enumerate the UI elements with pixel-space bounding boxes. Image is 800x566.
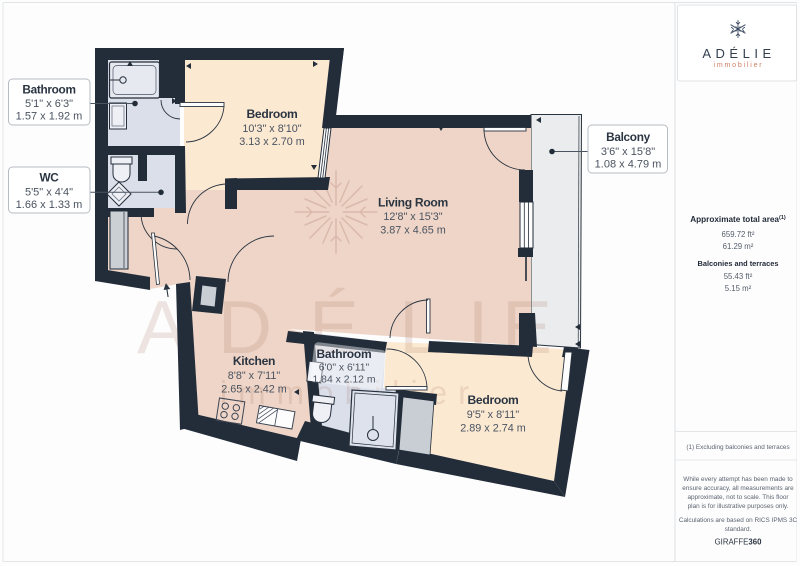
svg-text:Bathroom: Bathroom — [22, 83, 75, 97]
svg-text:GIRAFFE360: GIRAFFE360 — [715, 538, 762, 547]
svg-text:Approximate total area(1): Approximate total area(1) — [690, 215, 786, 224]
svg-text:I: I — [468, 285, 489, 369]
svg-text:5.15 m²: 5.15 m² — [725, 284, 752, 293]
svg-text:6'0" x 6'11": 6'0" x 6'11" — [319, 363, 370, 374]
svg-text:approximate, not to scale. Thi: approximate, not to scale. This floor — [687, 494, 789, 501]
svg-text:Balconies and terraces: Balconies and terraces — [698, 259, 779, 268]
svg-text:While every attempt has been m: While every attempt has been made to — [683, 476, 793, 483]
svg-text:3'6" x 15'8": 3'6" x 15'8" — [601, 146, 655, 158]
svg-text:Bathroom: Bathroom — [316, 347, 371, 361]
svg-text:Bedroom: Bedroom — [247, 107, 298, 121]
svg-text:Kitchen: Kitchen — [233, 354, 275, 368]
svg-text:Calculations are based on RICS: Calculations are based on RICS IPMS 3C — [679, 517, 798, 524]
svg-text:1.57 x 1.92 m: 1.57 x 1.92 m — [16, 111, 83, 123]
svg-text:5'5" x 4'4": 5'5" x 4'4" — [25, 187, 73, 199]
svg-text:1.84 x 2.12 m: 1.84 x 2.12 m — [313, 375, 376, 386]
svg-text:2.89 x 2.74 m: 2.89 x 2.74 m — [460, 423, 525, 435]
svg-text:ADÉLIE: ADÉLIE — [702, 46, 775, 61]
svg-text:3.13 x 2.70 m: 3.13 x 2.70 m — [239, 136, 304, 148]
svg-text:55.43 ft²: 55.43 ft² — [724, 272, 753, 281]
svg-text:3.87 x 4.65 m: 3.87 x 4.65 m — [380, 225, 445, 237]
svg-text:Bedroom: Bedroom — [468, 393, 519, 407]
svg-text:immobilier: immobilier — [714, 62, 764, 69]
svg-text:5'1" x 6'3": 5'1" x 6'3" — [25, 98, 73, 110]
svg-text:9'5" x 8'11": 9'5" x 8'11" — [467, 409, 520, 421]
svg-text:61.29 m²: 61.29 m² — [723, 242, 754, 251]
svg-text:659.72 ft²: 659.72 ft² — [722, 230, 755, 239]
svg-text:ensure accuracy, all measureme: ensure accuracy, all measurements are — [682, 485, 794, 492]
svg-text:8'8" x 7'11": 8'8" x 7'11" — [228, 370, 281, 382]
svg-text:1.08 x 4.79 m: 1.08 x 4.79 m — [595, 159, 662, 171]
svg-text:Balcony: Balcony — [606, 130, 651, 144]
svg-text:WC: WC — [39, 171, 59, 185]
svg-text:1.66 x 1.33 m: 1.66 x 1.33 m — [16, 199, 83, 211]
svg-text:12'8" x 15'3": 12'8" x 15'3" — [383, 211, 442, 223]
svg-text:10'3" x 8'10": 10'3" x 8'10" — [242, 123, 301, 135]
svg-text:(1) Excluding balconies and te: (1) Excluding balconies and terraces — [686, 444, 789, 451]
svg-text:L: L — [399, 285, 441, 369]
svg-text:plan is for illustrative purpo: plan is for illustrative purposes only. — [688, 503, 789, 510]
svg-text:standard.: standard. — [725, 526, 752, 533]
svg-text:2.65 x 2.42 m: 2.65 x 2.42 m — [221, 384, 286, 396]
svg-text:Living Room: Living Room — [378, 196, 448, 210]
